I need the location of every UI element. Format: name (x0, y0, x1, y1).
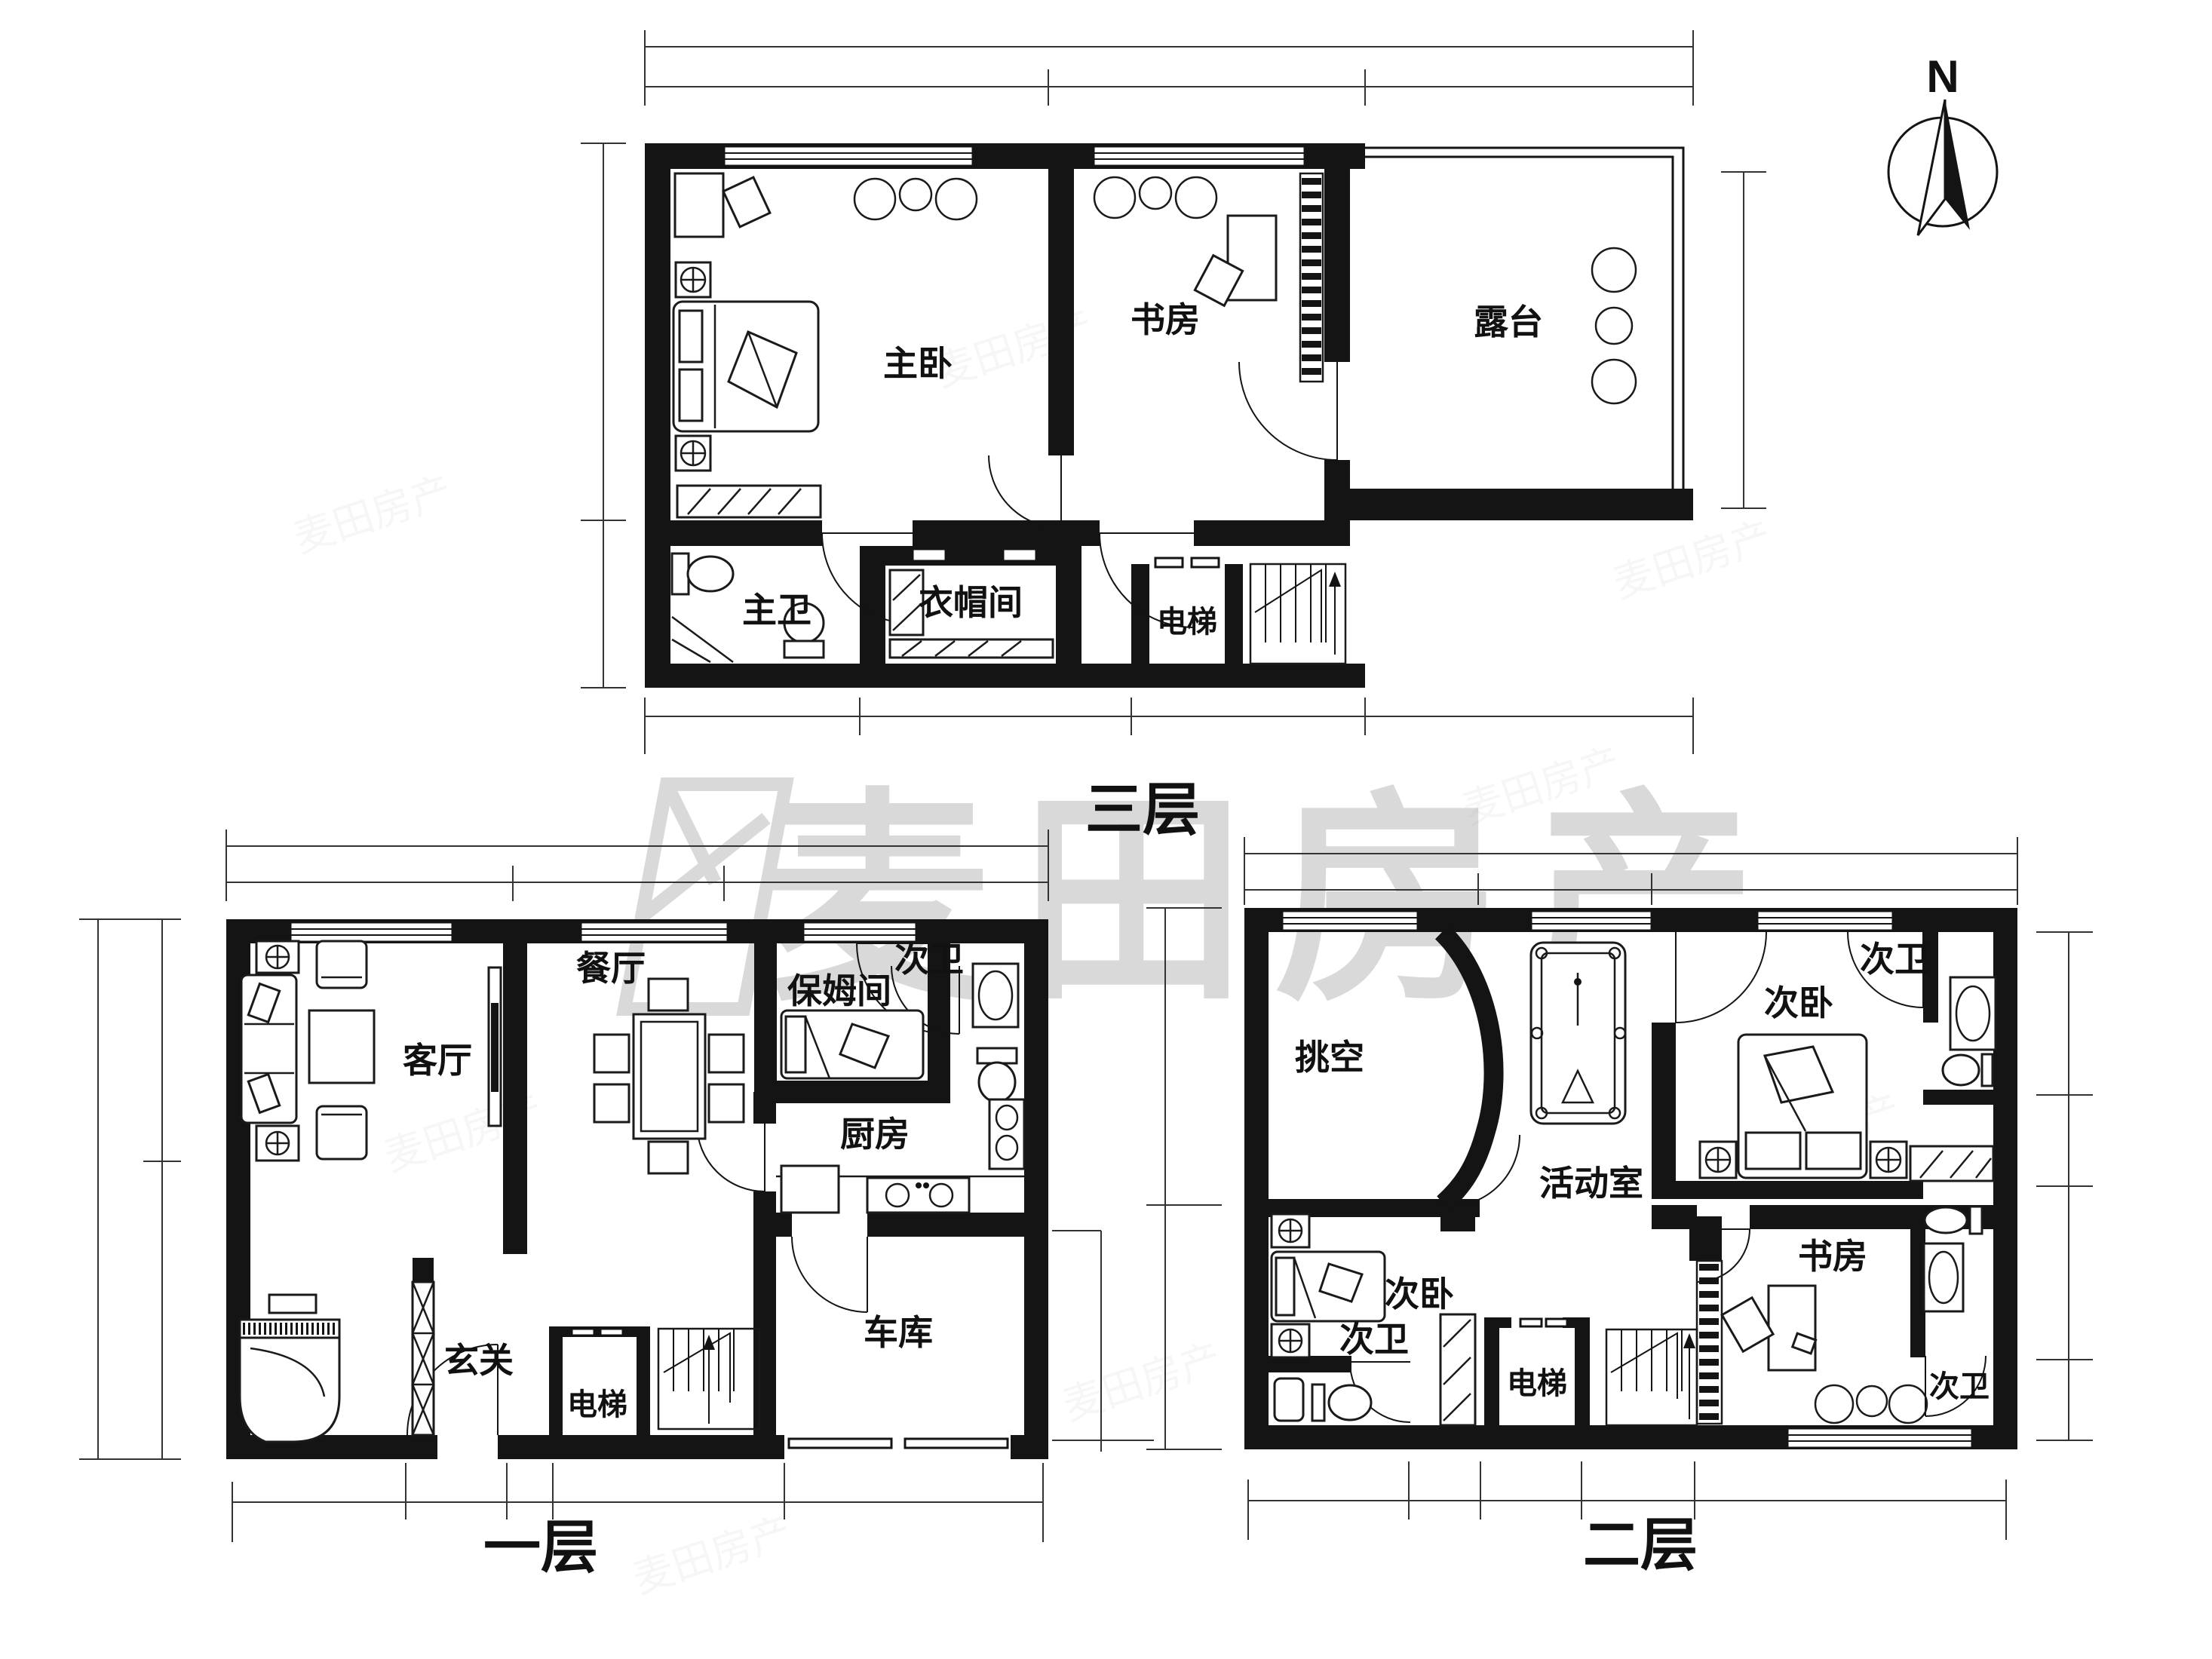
floor-plan-third: 主卧 书房 露台 主卫 衣帽间 电梯 三层 (581, 30, 1766, 842)
sofa-icon (241, 941, 374, 1161)
room-label-elevator-third: 电梯 (1157, 606, 1217, 639)
room-label-bedroom-top: 次卧 (1764, 983, 1833, 1023)
wardrobe-icon (677, 486, 821, 517)
room-label-bath-right: 次卫 (1929, 1370, 1990, 1403)
floor-plan-first: 客厅 餐厅 次卫 保姆间 厨房 玄关 电梯 车库 一层 (79, 830, 1154, 1580)
study-second-icons (1697, 1261, 1927, 1424)
toilet-icon (672, 554, 733, 594)
svg-text:麦田房产: 麦田房产 (1608, 514, 1777, 607)
svg-text:麦田房产: 麦田房产 (627, 1509, 796, 1602)
floor-label-third: 三层 (1085, 778, 1200, 842)
room-label-terrace: 露台 (1474, 302, 1543, 342)
room-label-study-second: 书房 (1798, 1237, 1867, 1276)
desk-icon (675, 173, 770, 237)
room-label-bedroom-bottom: 次卧 (1385, 1274, 1454, 1314)
piano-icon (240, 1295, 339, 1442)
chair-set-icon (854, 179, 977, 219)
room-label-kitchen: 厨房 (840, 1115, 910, 1154)
room-label-elevator-first: 电梯 (567, 1388, 627, 1421)
room-label-nanny-room: 保姆间 (787, 971, 891, 1010)
compass-north-label: N (1926, 51, 1959, 102)
terrace-chairs-icon (1592, 248, 1636, 403)
svg-text:麦田房产: 麦田房产 (288, 468, 457, 562)
room-label-cloakroom: 衣帽间 (919, 583, 1023, 622)
room-label-dining-room: 餐厅 (576, 949, 646, 988)
room-label-garage: 车库 (864, 1313, 933, 1352)
bath1-toilet-icon (977, 1048, 1017, 1102)
watermark-text: 麦田房产 (765, 774, 1784, 1027)
floor-plan-sheet: 麦田房产 麦田房产 麦田房产 麦田房产 麦田房产 麦田房产 麦田房产 麦田房产 … (0, 0, 2212, 1659)
room-label-bath-bottom: 次卫 (1339, 1320, 1409, 1359)
stairs-icon (1250, 564, 1345, 664)
room-label-bath-top: 次卫 (1860, 940, 1929, 979)
compass-icon: N (1888, 51, 1997, 235)
room-label-void: 挑空 (1295, 1038, 1364, 1077)
bed-icon (673, 302, 818, 431)
floor-label-second: 二层 (1583, 1513, 1698, 1578)
room-label-master-bedroom: 主卧 (883, 344, 953, 383)
room-label-study-third: 书房 (1131, 300, 1200, 339)
room-label-activity-room: 活动室 (1539, 1164, 1643, 1203)
bath1-sink-icon (973, 964, 1018, 1027)
room-label-foyer: 玄关 (444, 1341, 514, 1380)
svg-text:麦田房产: 麦田房产 (1057, 1335, 1226, 1429)
shower-icon (672, 617, 733, 662)
stairs-second-icon (1606, 1329, 1697, 1425)
room-label-elevator-second: 电梯 (1507, 1367, 1567, 1400)
room-label-living-room: 客厅 (403, 1041, 472, 1080)
bath-bottom-icons (1275, 1378, 1371, 1421)
study-desk-icon (1195, 216, 1276, 305)
tv-cabinet-icon (489, 967, 501, 1126)
stairs-first-icon (658, 1329, 759, 1429)
nanny-bed-icon (781, 1010, 923, 1078)
study-chair-set-icon (1094, 177, 1216, 218)
room-label-bath-first: 次卫 (894, 940, 964, 979)
bath-top-icons (1943, 977, 1996, 1086)
billiard-table-icon (1531, 943, 1625, 1124)
bath-right-icons (1924, 1207, 1982, 1311)
bookshelf-icon (1300, 173, 1323, 382)
room-label-master-bath: 主卫 (742, 590, 811, 630)
floor-label-first: 一层 (483, 1516, 598, 1580)
foyer-closet-icon (413, 1282, 434, 1435)
